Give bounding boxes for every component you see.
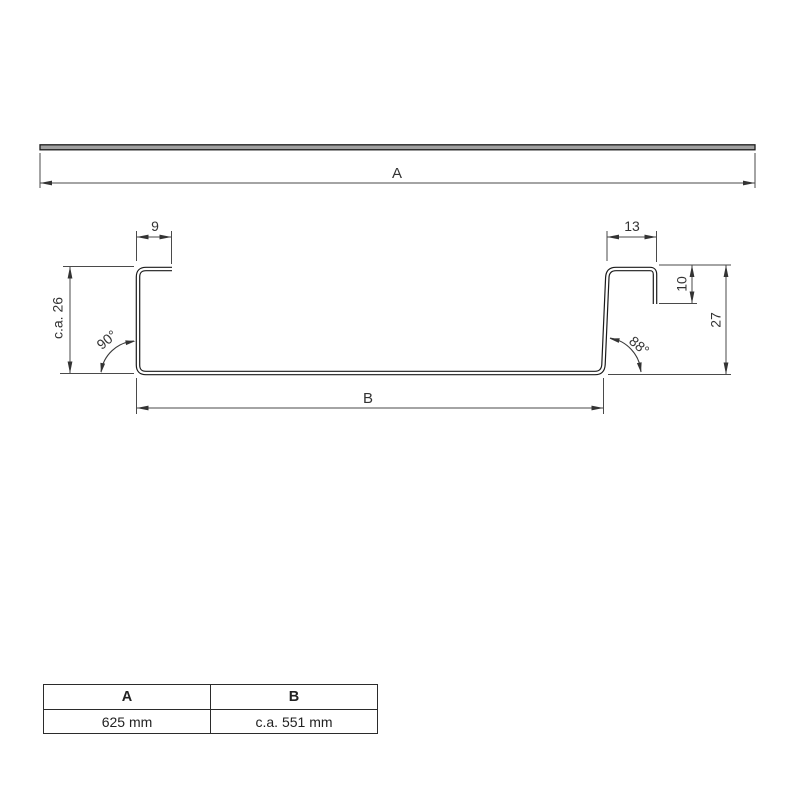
angle-right-bend: 88° [609,333,653,373]
profile-outline-inner [138,269,655,373]
dim-13-label: 13 [624,218,640,234]
profile-drawing-canvas: A 9 13 10 [0,0,800,800]
dim-left-height: c.a. 26 [50,267,135,374]
angle-90-label: 90° [93,327,120,353]
angle-90-arrow-top [125,339,136,345]
dim-b-label: B [363,390,373,407]
flat-sheet-profile: A [40,145,755,188]
dim-27-label: 27 [708,312,724,328]
dim-right-lip: 10 [659,265,731,304]
table-header-a: A [44,685,211,710]
dim-26-label: c.a. 26 [50,297,66,339]
cross-section-profile [138,269,655,373]
table-header-b: B [211,685,378,710]
angle-88-arrow-bottom [637,362,643,373]
table-value-row: 625 mm c.a. 551 mm [44,710,378,734]
angle-88-arrow-top [609,336,620,343]
dim-left-flange: 9 [137,218,172,264]
table-value-a: 625 mm [44,710,211,734]
angle-left-bend: 90° [93,327,135,374]
dimensions-table: A B 625 mm c.a. 551 mm [43,684,378,734]
dim-9-label: 9 [151,218,159,234]
profile-outline-outer [138,269,655,373]
angle-90-arrow-bottom [99,363,105,374]
angle-88-label: 88° [626,333,653,359]
dim-right-flange: 13 [607,218,657,262]
dim-base-width: B [137,378,604,414]
flat-sheet-bar [40,145,755,150]
dim-right-height: 27 [608,265,731,375]
technical-drawing-page: A 9 13 10 [0,0,800,800]
table-value-b: c.a. 551 mm [211,710,378,734]
dim-a-label: A [392,165,402,182]
dim-10-label: 10 [674,276,690,292]
table-header-row: A B [44,685,378,710]
